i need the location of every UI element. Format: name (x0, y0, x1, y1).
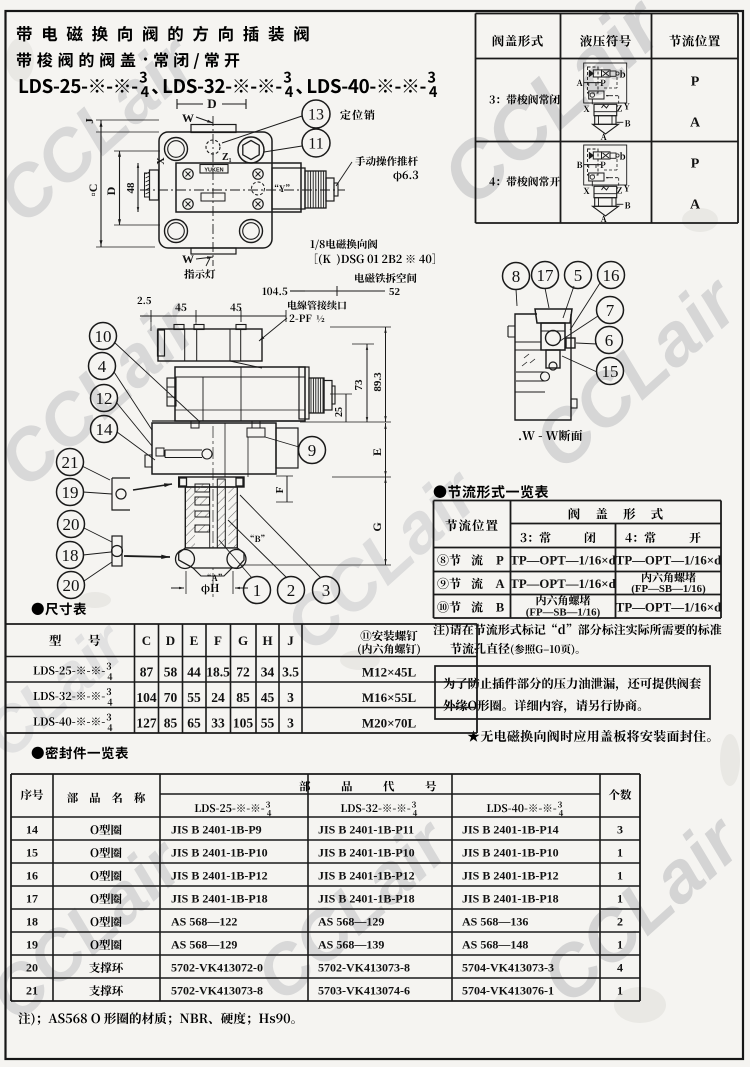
svg-text:D: D (207, 96, 216, 111)
svg-text:JIS B 2401-1B-P11: JIS B 2401-1B-P11 (318, 823, 414, 837)
svg-text:18.5: 18.5 (206, 665, 230, 680)
svg-text:11: 11 (308, 136, 323, 153)
svg-text:73: 73 (353, 379, 365, 391)
svg-text:127: 127 (136, 716, 157, 731)
svg-text:18: 18 (26, 915, 38, 929)
svg-text:M12×45L: M12×45L (362, 665, 417, 680)
svg-text:E: E (190, 633, 199, 648)
svg-text:C: C (142, 633, 151, 648)
svg-text:3: 3 (322, 581, 331, 600)
svg-text:104: 104 (136, 690, 157, 705)
svg-text:33: 33 (211, 716, 225, 731)
svg-text:14: 14 (26, 823, 38, 837)
svg-text:1: 1 (617, 846, 623, 860)
svg-text:9: 9 (308, 441, 317, 460)
svg-text:JIS B 2401-1B-P12: JIS B 2401-1B-P12 (171, 869, 268, 883)
svg-text:16: 16 (26, 869, 38, 883)
svg-text:J: J (84, 118, 96, 124)
svg-text:2: 2 (617, 915, 623, 929)
svg-text:70: 70 (164, 690, 178, 705)
svg-text:1: 1 (617, 892, 623, 906)
svg-text:34: 34 (261, 665, 275, 680)
svg-text:1: 1 (617, 869, 623, 883)
svg-text:AS 568—122: AS 568—122 (171, 915, 237, 929)
svg-text:17: 17 (537, 266, 555, 285)
svg-text:5702-VK413073-8: 5702-VK413073-8 (171, 984, 263, 998)
svg-text:15: 15 (602, 362, 619, 381)
svg-text:105: 105 (233, 716, 254, 731)
svg-text:JIS B 2401-1B-P10: JIS B 2401-1B-P10 (171, 846, 268, 860)
svg-text:3.5: 3.5 (282, 665, 299, 680)
svg-text:H: H (262, 633, 272, 648)
svg-text:P: P (691, 75, 700, 90)
svg-text:45: 45 (261, 690, 275, 705)
svg-text:D: D (104, 186, 118, 195)
svg-text:8: 8 (512, 267, 521, 286)
svg-text:5702-VK413073-8: 5702-VK413073-8 (318, 961, 410, 975)
svg-text:1: 1 (617, 938, 623, 952)
svg-text:F: F (214, 633, 222, 648)
svg-text:JIS B 2401-1B-P14: JIS B 2401-1B-P14 (462, 823, 559, 837)
svg-text:AS 568—129: AS 568—129 (171, 938, 237, 952)
svg-text:13: 13 (308, 107, 324, 124)
svg-text:TP—OPT—1/16×d: TP—OPT—1/16×d (510, 577, 615, 591)
svg-text:58: 58 (164, 665, 178, 680)
svg-text:7: 7 (606, 301, 615, 320)
svg-text:44: 44 (187, 665, 201, 680)
svg-text:3: 3 (287, 716, 294, 731)
svg-text:25: 25 (334, 407, 345, 417)
svg-text:AS 568—139: AS 568—139 (318, 938, 384, 952)
svg-text:19: 19 (26, 938, 38, 952)
svg-text:A: A (690, 198, 701, 213)
svg-text:▫C: ▫C (86, 184, 100, 197)
svg-text:CCLair: CCLair (270, 452, 496, 666)
svg-text:14: 14 (96, 420, 114, 439)
svg-text:YUKEN: YUKEN (204, 168, 223, 174)
svg-text:CCLair: CCLair (424, 0, 681, 222)
svg-text:21: 21 (26, 984, 38, 998)
svg-text:24: 24 (211, 690, 225, 705)
svg-text:JIS B 2401-1B-P18: JIS B 2401-1B-P18 (171, 892, 268, 906)
svg-text:4: 4 (98, 357, 107, 376)
svg-text:1: 1 (253, 581, 262, 600)
svg-text:52: 52 (389, 286, 401, 298)
svg-text:10: 10 (95, 327, 112, 346)
svg-text:85: 85 (164, 716, 178, 731)
svg-text:20: 20 (26, 961, 38, 975)
svg-text:55: 55 (261, 716, 275, 731)
svg-text:JIS B 2401-1B-P12: JIS B 2401-1B-P12 (462, 869, 559, 883)
svg-text:19: 19 (62, 483, 79, 502)
svg-text:5704-VK413076-1: 5704-VK413076-1 (462, 984, 554, 998)
svg-text:JIS B 2401-1B-P12: JIS B 2401-1B-P12 (318, 869, 415, 883)
svg-text:15: 15 (26, 846, 38, 860)
svg-text:85: 85 (236, 690, 250, 705)
svg-text:18: 18 (62, 546, 79, 565)
svg-text:W: W (182, 111, 194, 125)
svg-text:M16×55L: M16×55L (362, 690, 417, 705)
svg-text:72: 72 (236, 665, 250, 680)
svg-text:2: 2 (287, 581, 296, 600)
svg-text:21: 21 (62, 453, 79, 472)
svg-text:5: 5 (574, 266, 583, 285)
svg-text:B: B (496, 601, 504, 615)
svg-text:TP—OPT—1/16×d: TP—OPT—1/16×d (510, 554, 615, 568)
svg-text:65: 65 (187, 716, 201, 731)
svg-text:P: P (691, 157, 700, 172)
svg-text:12: 12 (96, 389, 113, 408)
svg-text:(FP—SB—1/16): (FP—SB—1/16) (631, 583, 706, 595)
svg-text:TP—OPT—1/16×d: TP—OPT—1/16×d (616, 601, 721, 615)
svg-text:D: D (166, 633, 175, 648)
svg-text:AS 568—129: AS 568—129 (318, 915, 384, 929)
svg-text:JIS B 2401-1B-P10: JIS B 2401-1B-P10 (462, 846, 559, 860)
svg-text:16: 16 (603, 266, 620, 285)
svg-text:JIS B 2401-1B-P18: JIS B 2401-1B-P18 (462, 892, 559, 906)
svg-text:20: 20 (63, 515, 80, 534)
svg-text:5703-VK413074-6: 5703-VK413074-6 (318, 984, 410, 998)
svg-text:48: 48 (125, 182, 137, 194)
svg-text:CCLair: CCLair (517, 258, 750, 485)
svg-text:G: G (238, 633, 248, 648)
svg-text:55: 55 (187, 690, 201, 705)
svg-text:A: A (495, 577, 504, 591)
svg-text:M20×70L: M20×70L (362, 716, 417, 731)
svg-text:W: W (182, 252, 194, 266)
svg-text:87: 87 (140, 665, 154, 680)
svg-text:JIS B 2401-1B-P9: JIS B 2401-1B-P9 (171, 823, 262, 837)
svg-text:X: X (156, 157, 167, 165)
svg-text:AS 568—136: AS 568—136 (462, 915, 528, 929)
svg-text:TP—OPT—1/16×d: TP—OPT—1/16×d (616, 554, 721, 568)
svg-text:3: 3 (287, 690, 294, 705)
svg-text:3: 3 (617, 823, 623, 837)
svg-text:(FP—SB—1/16): (FP—SB—1/16) (526, 607, 601, 619)
svg-text:F: F (274, 486, 286, 493)
svg-text:4: 4 (617, 961, 623, 975)
svg-text:5704-VK413073-3: 5704-VK413073-3 (462, 961, 554, 975)
svg-text:A: A (690, 116, 701, 131)
svg-text:E: E (370, 448, 384, 456)
svg-text:J: J (287, 633, 294, 648)
svg-text:G: G (370, 522, 384, 531)
svg-text:JIS B 2401-1B-P18: JIS B 2401-1B-P18 (318, 892, 415, 906)
svg-text:JIS B 2401-1B-P10: JIS B 2401-1B-P10 (318, 846, 415, 860)
svg-text:P: P (496, 554, 504, 568)
svg-text:89.3: 89.3 (372, 372, 384, 392)
svg-text:AS 568—148: AS 568—148 (462, 938, 528, 952)
svg-text:Z₁: Z₁ (222, 152, 232, 163)
svg-text:1: 1 (617, 984, 623, 998)
svg-text:6: 6 (605, 331, 614, 350)
svg-text:5702-VK413072-0: 5702-VK413072-0 (171, 961, 263, 975)
svg-text:20: 20 (63, 576, 80, 595)
svg-text:17: 17 (26, 892, 38, 906)
